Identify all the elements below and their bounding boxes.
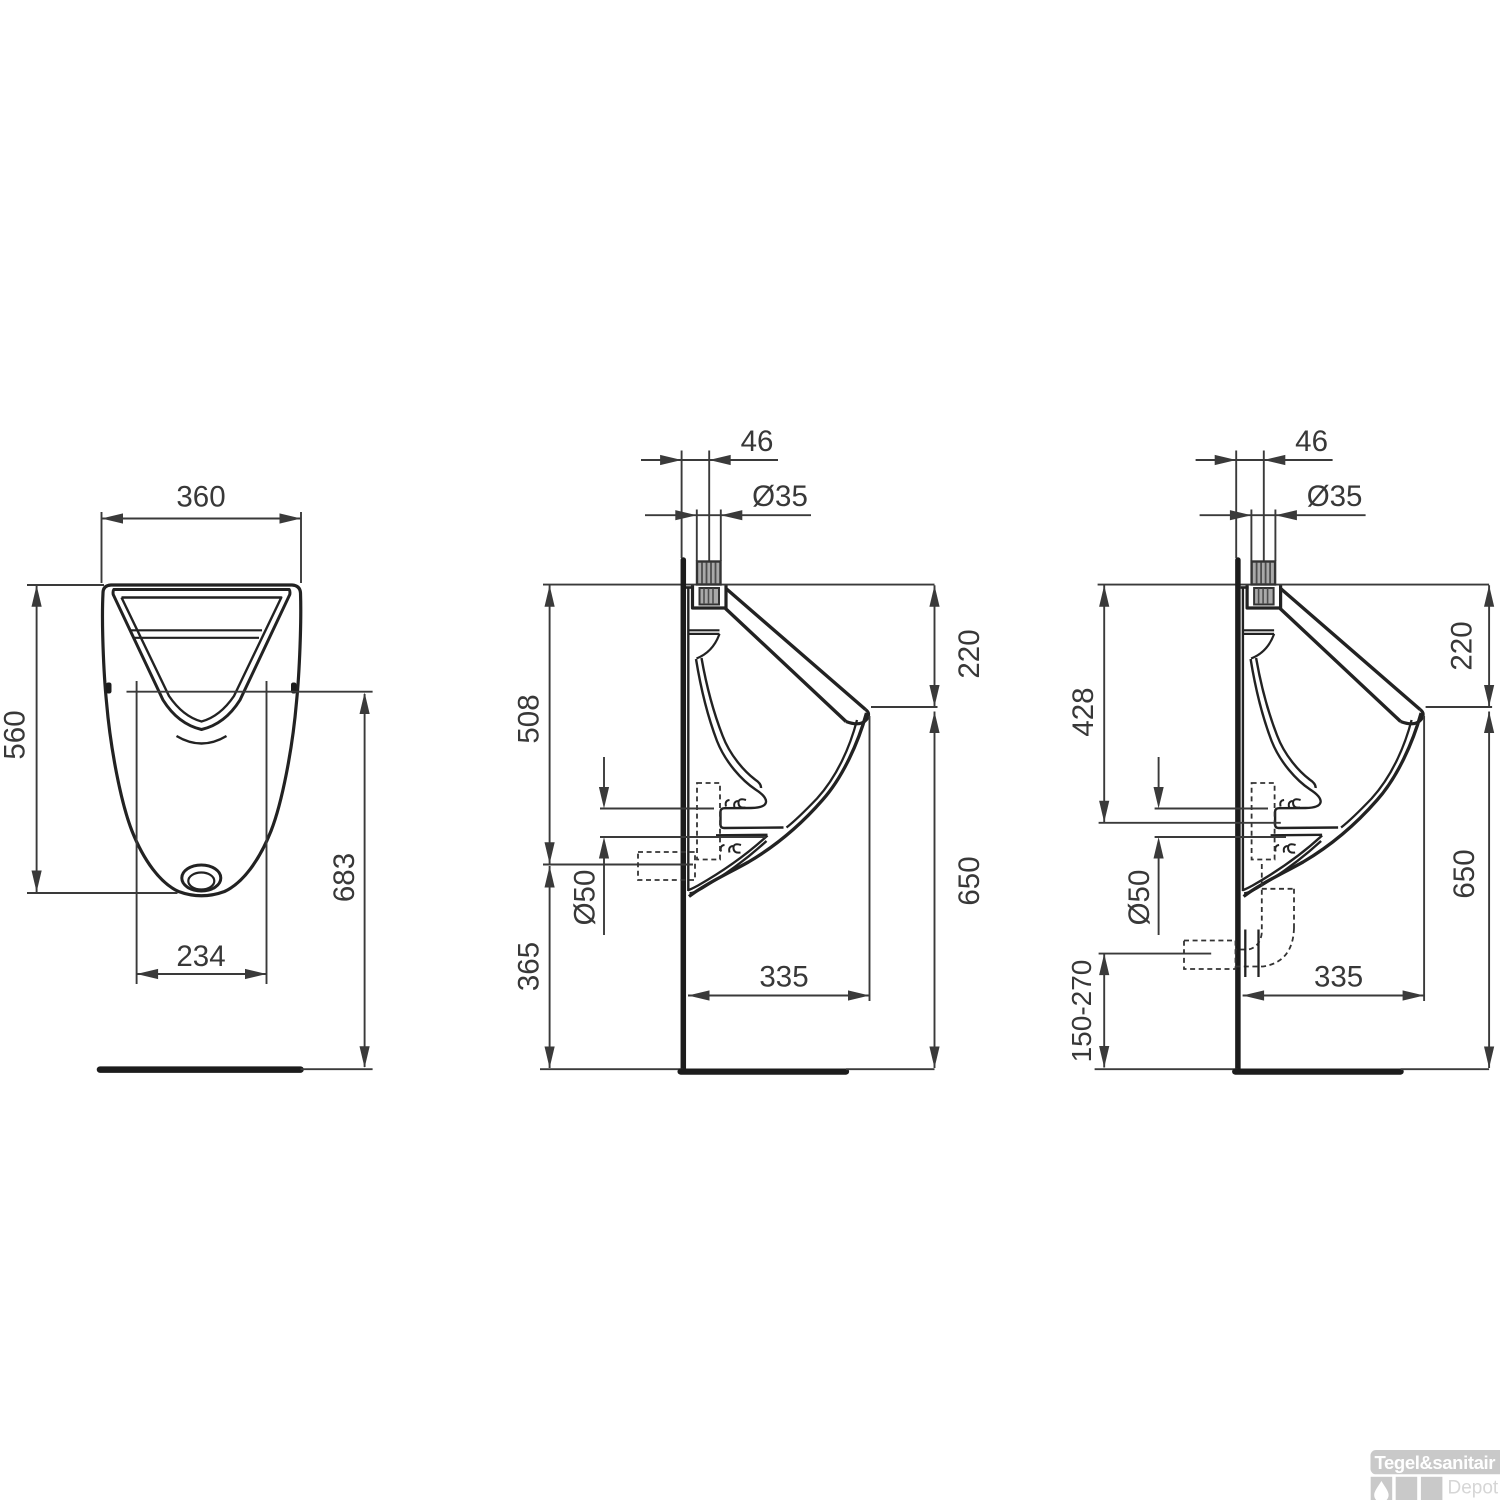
svg-text:428: 428: [1067, 687, 1100, 736]
svg-text:Depot: Depot: [1448, 1478, 1499, 1499]
svg-text:150-270: 150-270: [1066, 960, 1097, 1063]
svg-text:508: 508: [513, 694, 546, 743]
svg-text:560: 560: [0, 710, 32, 759]
svg-text:335: 335: [759, 961, 808, 994]
svg-text:683: 683: [328, 853, 361, 902]
svg-text:360: 360: [176, 481, 225, 514]
svg-text:650: 650: [953, 856, 986, 905]
svg-text:Ø50: Ø50: [569, 870, 602, 926]
svg-text:220: 220: [1446, 621, 1479, 670]
svg-text:234: 234: [176, 940, 225, 973]
svg-text:Tegel&sanitair: Tegel&sanitair: [1375, 1452, 1496, 1473]
svg-text:220: 220: [953, 629, 986, 678]
svg-text:365: 365: [513, 942, 546, 991]
svg-text:650: 650: [1448, 849, 1481, 898]
svg-text:46: 46: [741, 425, 774, 458]
svg-text:Ø35: Ø35: [752, 480, 808, 513]
